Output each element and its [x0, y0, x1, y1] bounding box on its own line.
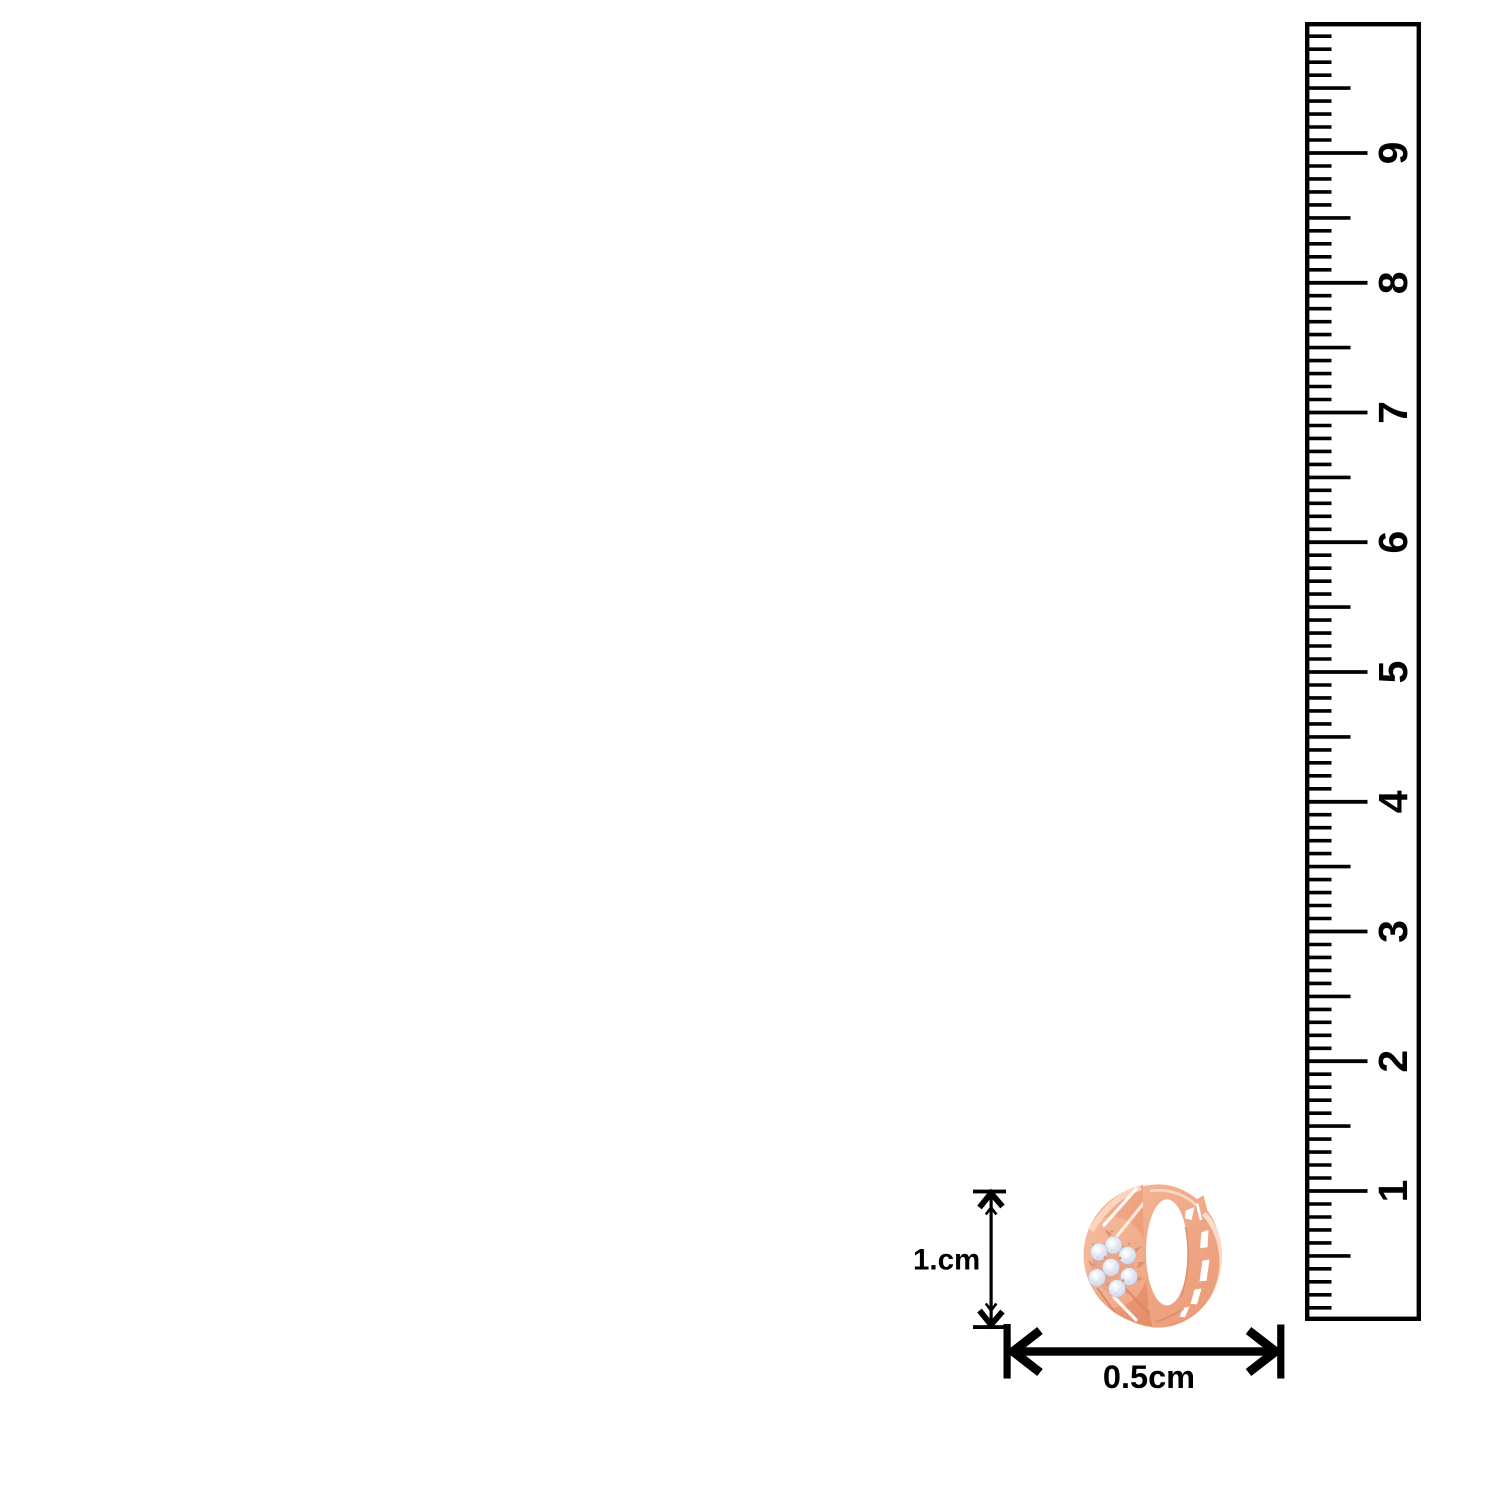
svg-text:2: 2 — [1370, 1050, 1416, 1073]
svg-text:6: 6 — [1370, 531, 1416, 554]
svg-text:0.5cm: 0.5cm — [1103, 1359, 1195, 1395]
svg-text:5: 5 — [1370, 661, 1416, 684]
svg-text:1.cm: 1.cm — [913, 1244, 980, 1277]
svg-text:7: 7 — [1370, 401, 1416, 424]
svg-text:3: 3 — [1370, 920, 1416, 943]
svg-text:9: 9 — [1370, 142, 1416, 165]
svg-text:1: 1 — [1370, 1180, 1416, 1203]
svg-text:4: 4 — [1370, 790, 1416, 813]
svg-text:8: 8 — [1370, 271, 1416, 294]
